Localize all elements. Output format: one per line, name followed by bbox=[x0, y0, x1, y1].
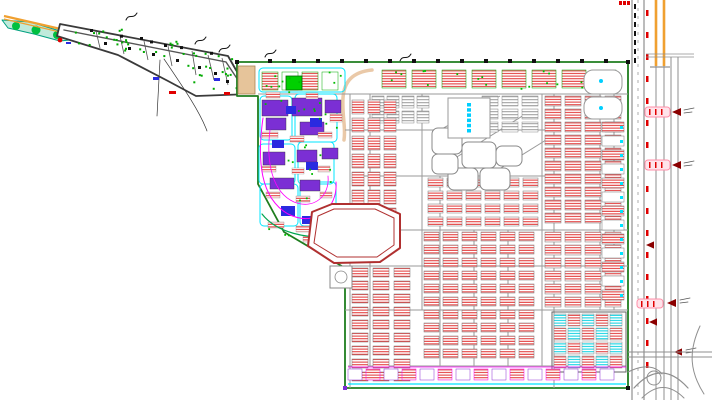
district-s-left-block bbox=[352, 294, 368, 303]
blue-block-3 bbox=[272, 140, 284, 148]
west-red-9 bbox=[318, 166, 330, 172]
west-trees-dot bbox=[309, 169, 311, 171]
district-e-mid-block bbox=[545, 297, 561, 307]
district-w-tall-block bbox=[352, 172, 364, 186]
strip-trees-1-dot bbox=[89, 44, 91, 46]
boundary-top-ticks-tick bbox=[316, 59, 320, 63]
west-trees-dot bbox=[304, 146, 306, 148]
district-ne-block bbox=[545, 122, 561, 132]
road-a-red-dashes-tick bbox=[646, 142, 649, 148]
e-column-cyan-squares-tick bbox=[620, 280, 623, 283]
district-s-center-block bbox=[424, 310, 439, 319]
district-s-center-block bbox=[462, 336, 477, 345]
district-ne-block bbox=[565, 109, 581, 119]
district-s-left-block bbox=[352, 346, 368, 355]
top-strip-trees-dot bbox=[456, 73, 458, 75]
district-top-strip-block bbox=[442, 70, 466, 88]
strip-trees-3-dot bbox=[230, 74, 232, 76]
district-s-center-block bbox=[462, 232, 477, 241]
pink-connector-2 bbox=[645, 160, 670, 170]
district-s-center-block bbox=[519, 245, 534, 254]
district-s-center-block bbox=[424, 232, 439, 241]
road-a-red-dashes-tick bbox=[646, 252, 649, 258]
cad-canvas[interactable] bbox=[0, 0, 712, 400]
district-se-special-block bbox=[568, 342, 580, 354]
top-red-marks-tick bbox=[619, 1, 622, 5]
district-s-center-block bbox=[481, 310, 496, 319]
strip-trees-3-dot bbox=[218, 55, 220, 57]
district-w-tall-block bbox=[368, 172, 380, 186]
strip-edge-ticks-tick bbox=[210, 52, 213, 55]
district-s-center-block bbox=[424, 336, 439, 345]
district-ne-block bbox=[545, 200, 561, 210]
district-se-special-block bbox=[596, 356, 608, 368]
district-w-tall-block bbox=[368, 154, 380, 168]
district-w-tall-block bbox=[352, 100, 364, 114]
district-s-left-block bbox=[373, 268, 389, 277]
district-c-below-block bbox=[447, 217, 462, 226]
top-strip-trees-dot bbox=[543, 70, 545, 72]
district-s-center-block bbox=[481, 297, 496, 306]
boundary-top-ticks-tick bbox=[580, 59, 584, 63]
revision-mark-2 bbox=[195, 37, 206, 44]
strip-trees-3-dot bbox=[205, 66, 207, 68]
marker-red-circle bbox=[58, 38, 63, 43]
top-strip-trees-dot bbox=[400, 73, 402, 75]
district-w-tall-block bbox=[384, 154, 396, 168]
strip-building-3 bbox=[152, 53, 155, 56]
district-s-center-block bbox=[481, 349, 496, 358]
west-trees-dot bbox=[298, 81, 300, 83]
district-s-center-block bbox=[519, 258, 534, 267]
e-column-cyan-squares-tick bbox=[620, 196, 623, 199]
pink-connector-3 bbox=[637, 299, 663, 308]
district-e-mid-block bbox=[545, 232, 561, 242]
interchange-loop bbox=[647, 371, 661, 385]
marker-red-2 bbox=[224, 92, 230, 95]
west-trees-dot bbox=[330, 181, 332, 183]
octagon-park-inner bbox=[314, 209, 394, 257]
district-s-center-block bbox=[443, 284, 458, 293]
district-s-center-block bbox=[500, 232, 515, 241]
district-s-center-block bbox=[500, 323, 515, 332]
west-trees-dot bbox=[282, 81, 284, 83]
top-strip-trees-dot bbox=[581, 81, 583, 83]
district-c-below-block bbox=[466, 217, 481, 226]
road-a-red-dashes-tick bbox=[646, 318, 649, 324]
pink-connector-1-hatch-tick bbox=[655, 109, 657, 115]
district-nc-gray-2-block bbox=[502, 96, 518, 106]
district-nc-gray-2-block bbox=[502, 109, 518, 119]
district-s-center-block bbox=[462, 258, 477, 267]
west-trees-dot bbox=[313, 108, 315, 110]
revision-mark-1 bbox=[126, 13, 137, 20]
district-w-tall-block bbox=[384, 172, 396, 186]
strip-trees-2-dot bbox=[125, 41, 127, 43]
west-trees-dot bbox=[314, 110, 316, 112]
top-strip-trees-dot bbox=[528, 86, 530, 88]
district-se-special-block bbox=[582, 314, 594, 326]
district-se-special-block bbox=[610, 342, 622, 354]
bottom-commercial-strip-block bbox=[438, 369, 452, 380]
label-scribble-1 bbox=[684, 108, 694, 113]
district-s-center-block bbox=[481, 245, 496, 254]
west-trees-dot bbox=[280, 100, 282, 102]
cad-drawing-stage bbox=[0, 0, 712, 400]
top-red-marks bbox=[619, 1, 630, 5]
district-ne-block bbox=[545, 187, 561, 197]
strip-trees-3-dot bbox=[193, 81, 195, 83]
district-s-center-block bbox=[500, 310, 515, 319]
district-ne-block bbox=[545, 148, 561, 158]
top-red-marks-tick bbox=[627, 1, 630, 5]
pink-connector-1-hatch-tick bbox=[649, 109, 651, 115]
district-w-tall-block bbox=[352, 190, 364, 204]
lake-cyan-text-marks-tick bbox=[467, 129, 471, 133]
district-ne-block bbox=[585, 148, 601, 158]
label-scribble-3 bbox=[680, 298, 690, 303]
district-s-center-block bbox=[519, 284, 534, 293]
strip-edge-ticks-tick bbox=[120, 35, 123, 38]
district-s-center-block bbox=[500, 297, 515, 306]
district-s-center-block bbox=[519, 297, 534, 306]
west-trees-dot bbox=[340, 75, 342, 77]
district-se-special-block bbox=[610, 356, 622, 368]
west-top-parcels-block bbox=[302, 72, 318, 90]
district-top-strip-block bbox=[412, 70, 436, 88]
district-ne-block bbox=[565, 187, 581, 197]
district-s-left-block bbox=[352, 307, 368, 316]
strip-building-6 bbox=[214, 72, 217, 75]
corner-sq-1 bbox=[235, 60, 239, 64]
west-trees-dot bbox=[319, 154, 321, 156]
bottom-commercial-strip-block bbox=[582, 369, 596, 380]
bottom-commercial-strip-block bbox=[600, 369, 614, 380]
district-ne-block bbox=[585, 174, 601, 184]
district-s-left-block bbox=[394, 268, 410, 277]
district-s-center-block bbox=[424, 349, 439, 358]
district-ne-block bbox=[585, 161, 601, 171]
strip-trees-3-dot bbox=[227, 75, 229, 77]
boundary-top-ticks-tick bbox=[268, 59, 272, 63]
district-s-center-block bbox=[481, 258, 496, 267]
road-a-black-dashes-tick bbox=[634, 22, 636, 27]
revision-mark-3 bbox=[219, 45, 230, 52]
strip-trees-3-dot bbox=[192, 67, 194, 69]
strip-trees-2-dot bbox=[176, 43, 178, 45]
west-trees-dot bbox=[329, 72, 331, 74]
road-a-red-dashes-tick bbox=[646, 230, 649, 236]
road-a-red-dashes-tick bbox=[646, 32, 649, 38]
district-e-mid-block bbox=[545, 284, 561, 294]
west-red-1 bbox=[266, 92, 280, 98]
district-se-special-block bbox=[568, 356, 580, 368]
district-ne-block bbox=[585, 213, 601, 223]
road-a-red-dashes-tick bbox=[646, 98, 649, 104]
strip-building-7 bbox=[226, 80, 229, 83]
marker-red-1 bbox=[169, 91, 176, 94]
marker-blue-3 bbox=[214, 78, 220, 81]
west-trees-dot bbox=[333, 82, 335, 84]
district-s-center-block bbox=[443, 349, 458, 358]
district-se-special-block bbox=[554, 356, 566, 368]
revision-mark-5 bbox=[400, 54, 411, 61]
district-ne-block bbox=[565, 174, 581, 184]
district-ne-block bbox=[585, 122, 601, 132]
strip-edge-ticks-tick bbox=[90, 29, 93, 32]
bottom-commercial-strip-block bbox=[546, 369, 560, 380]
district-s-center-block bbox=[443, 232, 458, 241]
strip-trees-3-dot bbox=[225, 73, 227, 75]
west-red-5 bbox=[290, 136, 304, 142]
district-s-left-block bbox=[352, 268, 368, 277]
strip-trees-1-dot bbox=[121, 29, 123, 31]
district-s-left-block bbox=[394, 333, 410, 342]
pink-connector-3-hatch-tick bbox=[653, 301, 655, 307]
district-se-special-block bbox=[610, 314, 622, 326]
pink-connector-3-hatch-tick bbox=[641, 301, 643, 307]
district-s-center-block bbox=[481, 232, 496, 241]
strip-trees-2-dot bbox=[124, 50, 126, 52]
district-c-below-block bbox=[504, 191, 519, 200]
purple-block-4 bbox=[266, 118, 286, 130]
lake-cyan-text-marks-tick bbox=[467, 103, 471, 107]
district-e-mid-block bbox=[585, 297, 601, 307]
pink-connector-2-hatch-tick bbox=[661, 162, 663, 168]
strip-trees-3-dot bbox=[201, 75, 203, 77]
road-a-black-dashes-tick bbox=[634, 13, 636, 18]
arrow-marker-1 bbox=[672, 108, 681, 116]
district-ne-block bbox=[545, 213, 561, 223]
strip-edge-ticks-tick bbox=[150, 40, 153, 43]
boundary-top-ticks-tick bbox=[508, 59, 512, 63]
west-trees-dot bbox=[303, 108, 305, 110]
e-column-cyan-squares-tick bbox=[620, 168, 623, 171]
green-blob-1 bbox=[12, 22, 20, 30]
district-e-mid-block bbox=[585, 284, 601, 294]
strip-building-2 bbox=[128, 47, 131, 50]
lake-cyan-text-marks-tick bbox=[467, 124, 471, 128]
west-trees-dot bbox=[298, 110, 300, 112]
district-s-center-block bbox=[462, 310, 477, 319]
district-nc-gray-2-block bbox=[522, 109, 538, 119]
tan-station-block bbox=[238, 66, 255, 94]
strip-trees-1-dot bbox=[106, 36, 108, 38]
top-strip-trees-dot bbox=[485, 84, 487, 86]
west-trees-dot bbox=[299, 200, 301, 202]
west-trees-dot bbox=[336, 127, 338, 129]
lake-cyan-text-marks-tick bbox=[467, 113, 471, 117]
blue-block-1 bbox=[286, 106, 296, 114]
strip-building-1 bbox=[104, 42, 107, 45]
purple-block-1 bbox=[262, 100, 288, 116]
district-se-special-block bbox=[582, 342, 594, 354]
district-e-mid-block bbox=[585, 271, 601, 281]
district-se-special-block bbox=[596, 342, 608, 354]
district-s-center-block bbox=[443, 271, 458, 280]
bottom-commercial-strip-block bbox=[420, 369, 434, 380]
boundary-top-ticks-tick bbox=[388, 59, 392, 63]
west-trees-dot bbox=[265, 103, 267, 105]
top-strip-trees-dot bbox=[477, 78, 479, 80]
district-c-below-block bbox=[447, 204, 462, 213]
district-ne-block bbox=[585, 200, 601, 210]
road-a-black-dashes bbox=[634, 4, 636, 63]
boundary-top-ticks-tick bbox=[460, 59, 464, 63]
district-s-center-block bbox=[424, 323, 439, 332]
boundary-top-ticks-tick bbox=[364, 59, 368, 63]
west-trees-dot bbox=[325, 123, 327, 125]
district-s-left-block bbox=[373, 320, 389, 329]
district-c-below-block bbox=[523, 191, 538, 200]
road-a-black-dashes-tick bbox=[634, 40, 636, 45]
top-strip-trees-dot bbox=[423, 70, 425, 72]
district-s-center-block bbox=[481, 336, 496, 345]
district-w-tall-block bbox=[384, 190, 396, 204]
interchange-ramp-3 bbox=[692, 326, 704, 394]
west-trees-dot bbox=[311, 173, 313, 175]
west-red-2 bbox=[306, 93, 318, 99]
district-s-left-block bbox=[394, 281, 410, 290]
road-a-black-dashes-tick bbox=[634, 31, 636, 36]
strip-trees-3-dot bbox=[187, 65, 189, 67]
blue-block-4 bbox=[306, 162, 318, 170]
district-s-center-block bbox=[443, 323, 458, 332]
district-s-left-block bbox=[373, 333, 389, 342]
district-s-center-block bbox=[424, 271, 439, 280]
district-e-mid-block bbox=[565, 297, 581, 307]
district-s-left bbox=[352, 268, 410, 381]
district-ne-block bbox=[545, 96, 561, 106]
purple-block-7 bbox=[297, 150, 317, 162]
strip-building-8 bbox=[140, 37, 143, 40]
road-a-red-dashes-tick bbox=[646, 274, 649, 280]
district-s-center-block bbox=[443, 258, 458, 267]
strip-trees-1-dot bbox=[121, 41, 123, 43]
district-nc-gray-1-block bbox=[402, 96, 414, 108]
road-a-red-dashes-tick bbox=[646, 186, 649, 192]
district-e-mid-block bbox=[565, 284, 581, 294]
top-strip-trees-dot bbox=[395, 71, 397, 73]
district-s-center-block bbox=[519, 310, 534, 319]
district-ne-block bbox=[565, 122, 581, 132]
bottom-commercial-strip bbox=[348, 369, 614, 380]
district-e-mid-block bbox=[565, 271, 581, 281]
district-ne-block bbox=[565, 200, 581, 210]
district-ne-block bbox=[565, 148, 581, 158]
district-s-left-block bbox=[373, 307, 389, 316]
district-s-center-block bbox=[500, 258, 515, 267]
west-trees-dot bbox=[306, 197, 308, 199]
district-w-tall-block bbox=[368, 190, 380, 204]
west-red-8 bbox=[292, 168, 304, 174]
west-top-parcels-block bbox=[322, 72, 338, 90]
district-top-strip-block bbox=[472, 70, 496, 88]
strip-trees-2-dot bbox=[155, 51, 157, 53]
corner-sq-3 bbox=[626, 386, 630, 390]
west-red-3 bbox=[330, 114, 342, 122]
district-ne-block bbox=[565, 161, 581, 171]
district-s-center-block bbox=[424, 284, 439, 293]
pink-connector-1-hatch-tick bbox=[661, 109, 663, 115]
district-se-special-block bbox=[582, 356, 594, 368]
district-c-below-block bbox=[523, 178, 538, 187]
west-trees-dot bbox=[274, 75, 276, 77]
west-trees-dot bbox=[288, 160, 290, 162]
district-s-left-block bbox=[394, 294, 410, 303]
district-c-below-block bbox=[485, 204, 500, 213]
district-s-center-block bbox=[481, 323, 496, 332]
west-trees-dot bbox=[278, 86, 280, 88]
top-strip-trees-dot bbox=[557, 83, 559, 85]
bottom-commercial-strip-block bbox=[492, 369, 506, 380]
district-nc-gray-1-block bbox=[402, 111, 414, 123]
e-column-cyan-squares-tick bbox=[620, 238, 623, 241]
road-a-black-dashes-tick bbox=[634, 49, 636, 54]
west-trees-dot bbox=[288, 234, 290, 236]
boundary-top-ticks bbox=[268, 59, 608, 63]
lake-cyan-text-marks-tick bbox=[467, 108, 471, 112]
district-w-tall-block bbox=[384, 136, 396, 150]
district-ne-block bbox=[545, 109, 561, 119]
top-strip-trees-dot bbox=[581, 87, 583, 89]
district-c-below-block bbox=[428, 217, 443, 226]
district-top-strip-block bbox=[502, 70, 526, 88]
boundary-top-ticks-tick bbox=[340, 59, 344, 63]
district-e-mid-block bbox=[585, 245, 601, 255]
west-trees-dot bbox=[329, 169, 331, 171]
district-s-center-block bbox=[519, 271, 534, 280]
district-s-center-block bbox=[462, 349, 477, 358]
west-red-11 bbox=[296, 196, 310, 202]
revision-mark-4 bbox=[265, 50, 276, 57]
center-parcel-2 bbox=[462, 142, 496, 168]
strip-trees-3-dot bbox=[195, 55, 197, 57]
district-s-left-block bbox=[373, 294, 389, 303]
e-column-cyan-squares-tick bbox=[620, 154, 623, 157]
district-ne-block bbox=[565, 135, 581, 145]
e-column-cyan-squares-tick bbox=[620, 252, 623, 255]
district-ne-block bbox=[545, 135, 561, 145]
west-trees-dot bbox=[284, 234, 286, 236]
strip-trees-2-dot bbox=[175, 41, 177, 43]
district-w-tall-block bbox=[384, 118, 396, 132]
district-s-center-block bbox=[443, 336, 458, 345]
west-trees-dot bbox=[288, 91, 290, 93]
district-s-center-block bbox=[481, 271, 496, 280]
district-c-below-block bbox=[428, 191, 443, 200]
district-c-below-block bbox=[428, 178, 443, 187]
west-trees-dot bbox=[289, 77, 291, 79]
boundary-top-ticks-tick bbox=[556, 59, 560, 63]
strip-building-5 bbox=[198, 66, 201, 69]
district-s-center-block bbox=[462, 271, 477, 280]
strip-trees-3-dot bbox=[231, 58, 233, 60]
strip-trees-2-dot bbox=[127, 43, 129, 45]
west-trees-dot bbox=[305, 144, 307, 146]
district-nc-gray-2-block bbox=[502, 122, 518, 132]
bottom-commercial-strip-block bbox=[510, 369, 524, 380]
strip-trees-1-dot bbox=[102, 30, 104, 32]
strip-trees-1-dot bbox=[75, 32, 77, 34]
center-parcel-5 bbox=[432, 154, 458, 174]
district-s-center-block bbox=[500, 349, 515, 358]
center-parcel-6 bbox=[496, 146, 522, 166]
district-s-center-block bbox=[519, 349, 534, 358]
e-column-cyan-squares-tick bbox=[620, 182, 623, 185]
district-s-center-block bbox=[462, 297, 477, 306]
top-strip-trees-dot bbox=[424, 70, 426, 72]
